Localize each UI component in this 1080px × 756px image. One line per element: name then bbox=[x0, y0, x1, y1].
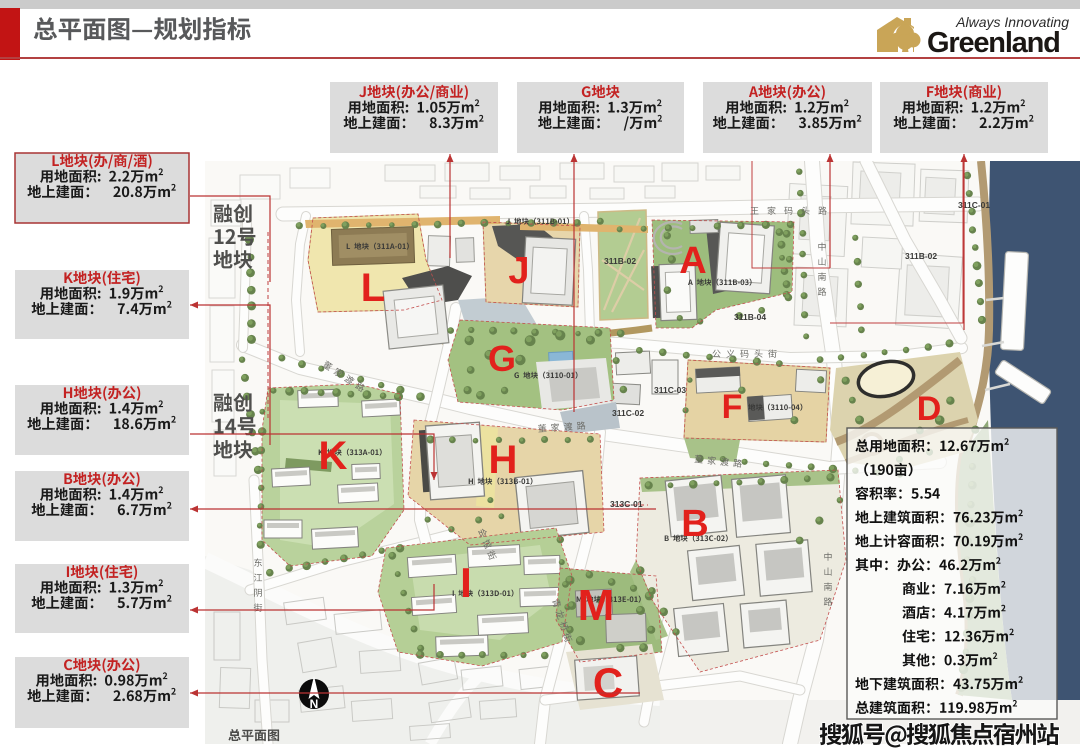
svg-text:C: C bbox=[593, 659, 623, 706]
svg-text:B: B bbox=[681, 503, 708, 545]
svg-text:311B-02: 311B-02 bbox=[604, 256, 636, 266]
svg-text:J: J bbox=[508, 250, 529, 292]
svg-text:D: D bbox=[917, 390, 942, 428]
svg-text:A: A bbox=[679, 240, 706, 282]
svg-text:H: H bbox=[489, 438, 518, 482]
svg-text:311C-02: 311C-02 bbox=[612, 408, 644, 418]
svg-text:I: I bbox=[460, 559, 472, 606]
svg-text:311B-04: 311B-04 bbox=[734, 312, 766, 322]
svg-text:G: G bbox=[488, 338, 516, 379]
svg-text:N: N bbox=[310, 697, 319, 711]
svg-text:311B-02: 311B-02 bbox=[905, 251, 937, 261]
svg-text:Greenland: Greenland bbox=[927, 27, 1060, 59]
svg-text:F: F bbox=[722, 388, 743, 426]
svg-text:Always Innovating: Always Innovating bbox=[955, 14, 1069, 30]
svg-text:K: K bbox=[319, 434, 348, 478]
svg-text:313C-01: 313C-01 bbox=[610, 499, 643, 509]
svg-text:L: L bbox=[361, 266, 385, 310]
svg-text:311C-01: 311C-01 bbox=[958, 200, 990, 210]
svg-text:311C-03: 311C-03 bbox=[654, 385, 686, 395]
svg-text:M: M bbox=[578, 581, 615, 630]
